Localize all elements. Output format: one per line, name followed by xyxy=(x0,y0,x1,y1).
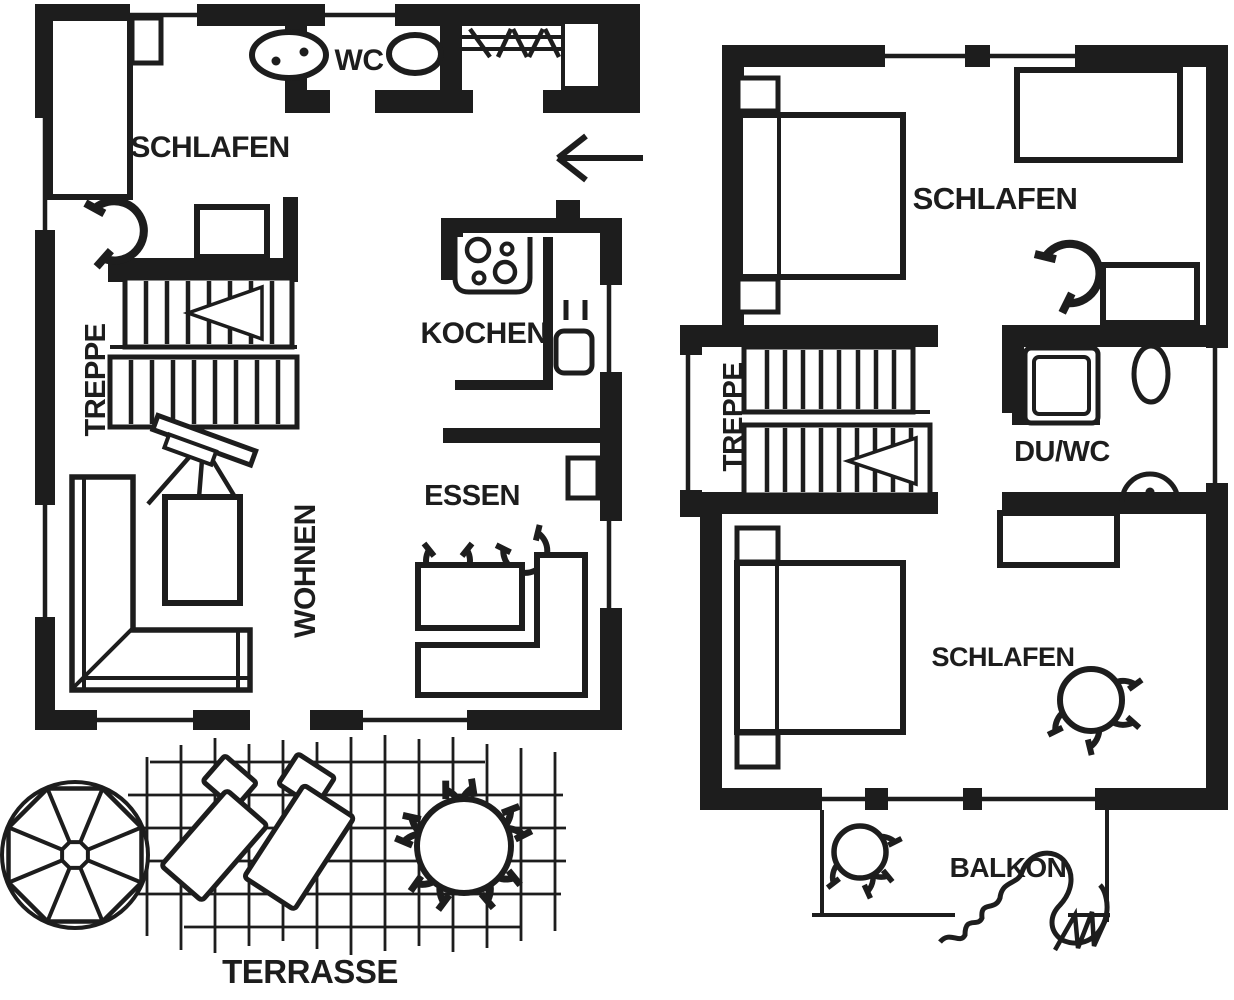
gf-wohnen-label: WOHNEN xyxy=(289,504,322,638)
double-bed-icon xyxy=(740,115,903,277)
double-bed-icon xyxy=(737,563,903,732)
coffee-table-icon xyxy=(165,497,240,603)
parasol-icon xyxy=(2,782,148,928)
stairs-icon xyxy=(744,347,930,495)
desk-icon xyxy=(1017,70,1180,160)
single-bed-icon xyxy=(50,18,130,197)
gf-kochen-label: KOCHEN xyxy=(420,317,547,350)
og-duwc-label: DU/WC xyxy=(1014,436,1110,468)
hob-icon xyxy=(455,237,530,292)
gf-terrasse-label: TERRASSE xyxy=(222,953,398,990)
round-table-icon xyxy=(1048,669,1142,755)
nightstand-icon xyxy=(132,18,161,63)
entrance-arrow-icon xyxy=(558,136,643,180)
og-balkon-label: BALKON xyxy=(950,852,1067,883)
washbasin-icon xyxy=(1134,346,1168,402)
gf-essen-label: ESSEN xyxy=(424,480,520,512)
cabinet-icon xyxy=(1000,513,1117,565)
shower-icon xyxy=(1025,348,1098,423)
upper-floor-plan: SCHLAFEN TREPPE DU/WC SCHLAFEN BALKON xyxy=(680,45,1228,950)
round-table-icon xyxy=(828,826,902,898)
door-swing-icon xyxy=(1035,232,1111,313)
side-table-icon xyxy=(568,458,598,498)
og-schlafen-top-label: SCHLAFEN xyxy=(913,181,1078,216)
floor-plan-drawing: SCHLAFEN WC TREPPE KOCHEN WOHNEN ESSEN T… xyxy=(0,0,1234,1000)
toilet-icon xyxy=(389,35,441,73)
round-table-icon xyxy=(395,779,531,910)
gf-wc-label: WC xyxy=(335,44,384,77)
wardrobe-icon xyxy=(462,22,600,88)
og-schlafen-bottom-label: SCHLAFEN xyxy=(932,642,1075,672)
gf-treppe-label: TREPPE xyxy=(80,323,112,436)
floor-plan-page: SCHLAFEN WC TREPPE KOCHEN WOHNEN ESSEN T… xyxy=(0,0,1234,1000)
gf-schlafen-label: SCHLAFEN xyxy=(130,131,289,164)
cabinet-icon xyxy=(1103,265,1197,323)
og-treppe-label: TREPPE xyxy=(717,362,748,471)
ground-floor-plan: SCHLAFEN WC TREPPE KOCHEN WOHNEN ESSEN T… xyxy=(2,4,643,990)
kitchen-sink-icon xyxy=(556,300,592,373)
washbasin-icon xyxy=(252,32,326,78)
stairs-icon xyxy=(110,278,297,427)
door-swing-icon xyxy=(85,194,149,267)
dresser-icon xyxy=(197,207,267,257)
